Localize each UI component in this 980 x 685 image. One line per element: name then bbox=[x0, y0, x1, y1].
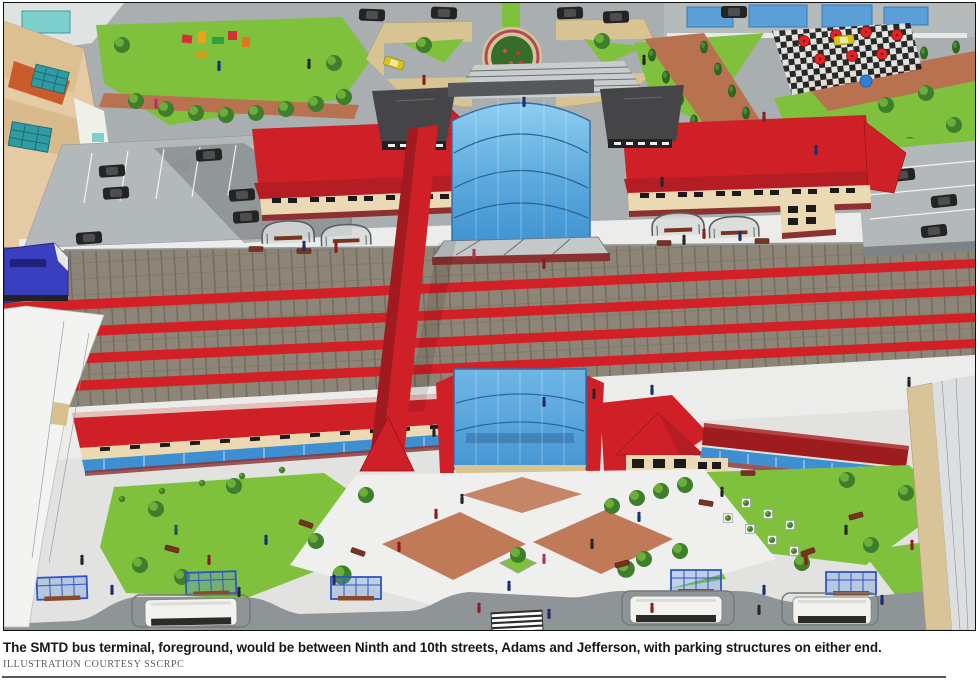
smtd-bus bbox=[793, 597, 871, 624]
smtd-bus bbox=[145, 598, 237, 627]
crosswalk bbox=[491, 610, 544, 630]
bus-shelter bbox=[262, 220, 315, 244]
credit-text: ILLUSTRATION COURTESY SSCRPC bbox=[3, 659, 971, 670]
commuter-train bbox=[4, 243, 68, 303]
terminal-rendering bbox=[4, 3, 975, 630]
blue-bus-shelter bbox=[826, 572, 876, 596]
bus-shelter bbox=[321, 224, 371, 247]
bus-shelter bbox=[652, 212, 705, 236]
taxi bbox=[834, 34, 855, 45]
blue-bus-shelter bbox=[37, 576, 88, 601]
bus-shelter bbox=[709, 216, 759, 239]
caption-text: The SMTD bus terminal, foreground, would… bbox=[3, 640, 971, 657]
blue-bus-shelter bbox=[671, 570, 721, 594]
playground-park bbox=[96, 17, 372, 125]
blue-bus-shelter bbox=[186, 571, 237, 596]
newspaper-figure: The SMTD bus terminal, foreground, would… bbox=[0, 0, 980, 685]
caption-block: The SMTD bus terminal, foreground, would… bbox=[3, 640, 971, 670]
illustration-frame bbox=[3, 2, 976, 631]
pavilion-east bbox=[600, 85, 684, 148]
blue-bus-shelter bbox=[331, 577, 381, 601]
smtd-bus bbox=[630, 596, 722, 623]
fountain bbox=[860, 75, 872, 87]
divider-rule bbox=[2, 676, 946, 678]
